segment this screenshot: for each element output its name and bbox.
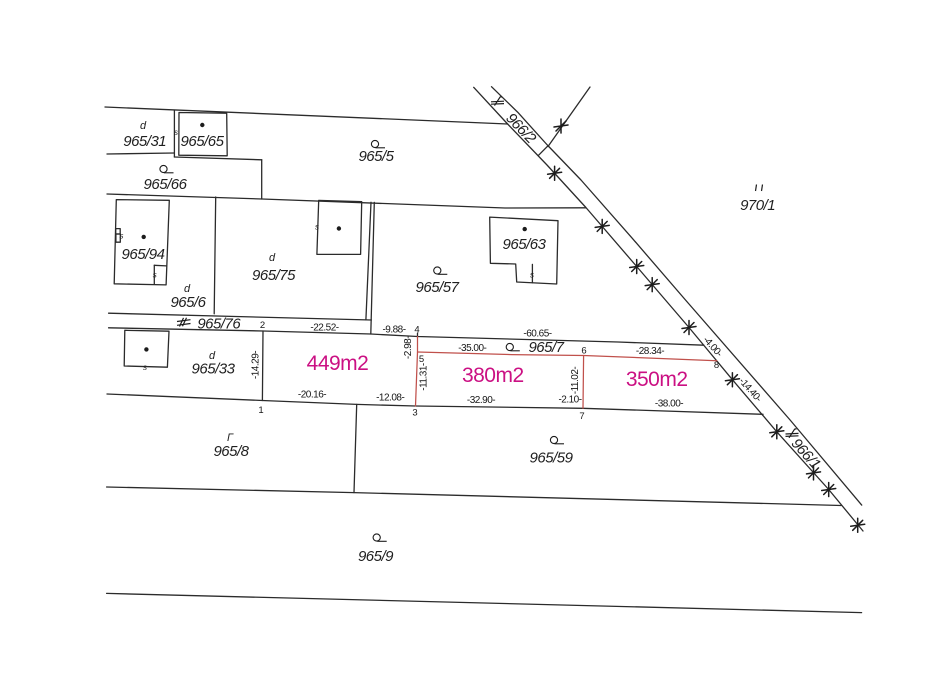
- svg-text:-11.02-: -11.02-: [570, 367, 581, 395]
- svg-text:d: d: [140, 120, 147, 132]
- svg-text:965/33: 965/33: [192, 361, 236, 378]
- svg-text:s: s: [174, 128, 178, 137]
- svg-text:3: 3: [412, 408, 417, 419]
- svg-text:-9.88-: -9.88-: [382, 325, 405, 336]
- svg-text:1: 1: [258, 405, 263, 416]
- svg-text:2: 2: [260, 320, 265, 331]
- svg-text:-60.65-: -60.65-: [523, 329, 551, 340]
- svg-text:965/75: 965/75: [252, 267, 296, 284]
- svg-text:s: s: [315, 223, 319, 232]
- svg-text:380m2: 380m2: [462, 364, 524, 387]
- svg-text:965/31: 965/31: [123, 133, 166, 150]
- svg-text:-28.34-: -28.34-: [636, 346, 664, 357]
- svg-text:5: 5: [419, 354, 424, 365]
- svg-text:965/63: 965/63: [503, 236, 547, 253]
- svg-text:-32.90-: -32.90-: [467, 395, 495, 406]
- svg-text:965/94: 965/94: [122, 246, 165, 263]
- svg-text:965/7: 965/7: [528, 339, 564, 356]
- svg-text:-14.29-: -14.29-: [250, 351, 261, 379]
- svg-text:-35.00-: -35.00-: [458, 343, 486, 354]
- svg-text:6: 6: [581, 346, 586, 357]
- svg-text:8: 8: [714, 360, 719, 371]
- svg-text:965/59: 965/59: [530, 450, 574, 467]
- svg-text:-38.00-: -38.00-: [655, 399, 683, 410]
- svg-text:965/8: 965/8: [213, 443, 249, 460]
- svg-text:965/76: 965/76: [197, 316, 241, 333]
- svg-text:-2.98-: -2.98-: [403, 336, 414, 359]
- svg-text:-2.10-: -2.10-: [558, 395, 581, 406]
- svg-text:965/5: 965/5: [358, 148, 394, 165]
- svg-text:965/57: 965/57: [416, 279, 460, 296]
- svg-text:965/66: 965/66: [144, 176, 188, 193]
- svg-text:965/9: 965/9: [358, 548, 394, 565]
- svg-text:s: s: [153, 271, 157, 280]
- svg-text:4: 4: [414, 325, 419, 336]
- svg-text:-20.16-: -20.16-: [298, 390, 326, 401]
- svg-text:s: s: [120, 232, 124, 241]
- svg-text:965/6: 965/6: [170, 294, 206, 311]
- svg-text:s: s: [143, 363, 147, 372]
- svg-text:965/65: 965/65: [181, 133, 225, 150]
- svg-text:d: d: [269, 252, 276, 264]
- svg-text:-12.08-: -12.08-: [376, 393, 404, 404]
- svg-text:-11.31-: -11.31-: [419, 363, 430, 391]
- svg-text:7: 7: [579, 411, 584, 422]
- svg-text:449m2: 449m2: [307, 352, 369, 375]
- svg-text:970/1: 970/1: [740, 197, 775, 214]
- svg-text:s: s: [530, 271, 534, 280]
- svg-text:350m2: 350m2: [626, 368, 688, 391]
- svg-text:-22.52-: -22.52-: [310, 323, 338, 334]
